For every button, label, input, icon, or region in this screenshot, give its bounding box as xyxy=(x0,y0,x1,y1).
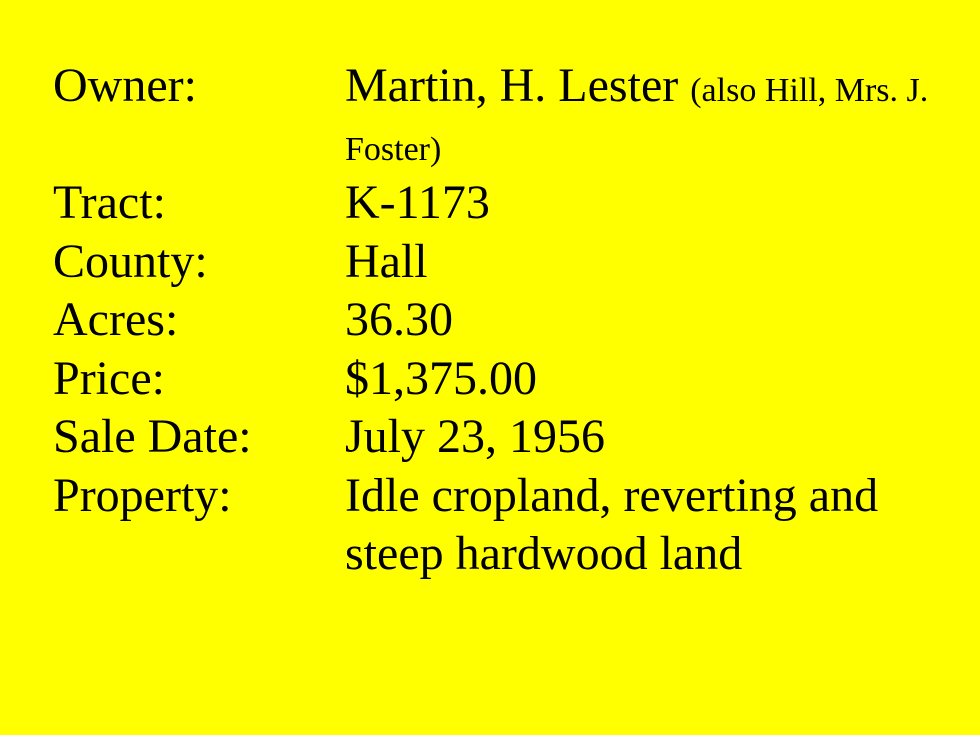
owner-value: Martin, H. Lester (also Hill, Mrs. J. Fo… xyxy=(345,57,950,174)
acres-value: 36.30 xyxy=(345,291,950,350)
field-row-tract: Tract: K-1173 xyxy=(53,174,960,233)
acres-label: Acres: xyxy=(53,291,345,350)
owner-name: Martin, H. Lester xyxy=(345,59,678,112)
field-row-acres: Acres: 36.30 xyxy=(53,291,960,350)
price-value: $1,375.00 xyxy=(345,350,950,409)
county-label: County: xyxy=(53,233,345,292)
owner-label: Owner: xyxy=(53,57,345,116)
field-row-county: County: Hall xyxy=(53,233,960,292)
field-row-owner: Owner: Martin, H. Lester (also Hill, Mrs… xyxy=(53,57,960,174)
tract-label: Tract: xyxy=(53,174,345,233)
field-row-sale-date: Sale Date: July 23, 1956 xyxy=(53,408,960,467)
property-value: Idle cropland, reverting and steep hardw… xyxy=(345,467,950,584)
price-label: Price: xyxy=(53,350,345,409)
sale-date-value: July 23, 1956 xyxy=(345,408,950,467)
tract-value: K-1173 xyxy=(345,174,950,233)
field-row-property: Property: Idle cropland, reverting and s… xyxy=(53,467,960,584)
property-label: Property: xyxy=(53,467,345,526)
property-record-slide: Owner: Martin, H. Lester (also Hill, Mrs… xyxy=(0,0,980,735)
field-row-price: Price: $1,375.00 xyxy=(53,350,960,409)
county-value: Hall xyxy=(345,233,950,292)
sale-date-label: Sale Date: xyxy=(53,408,345,467)
